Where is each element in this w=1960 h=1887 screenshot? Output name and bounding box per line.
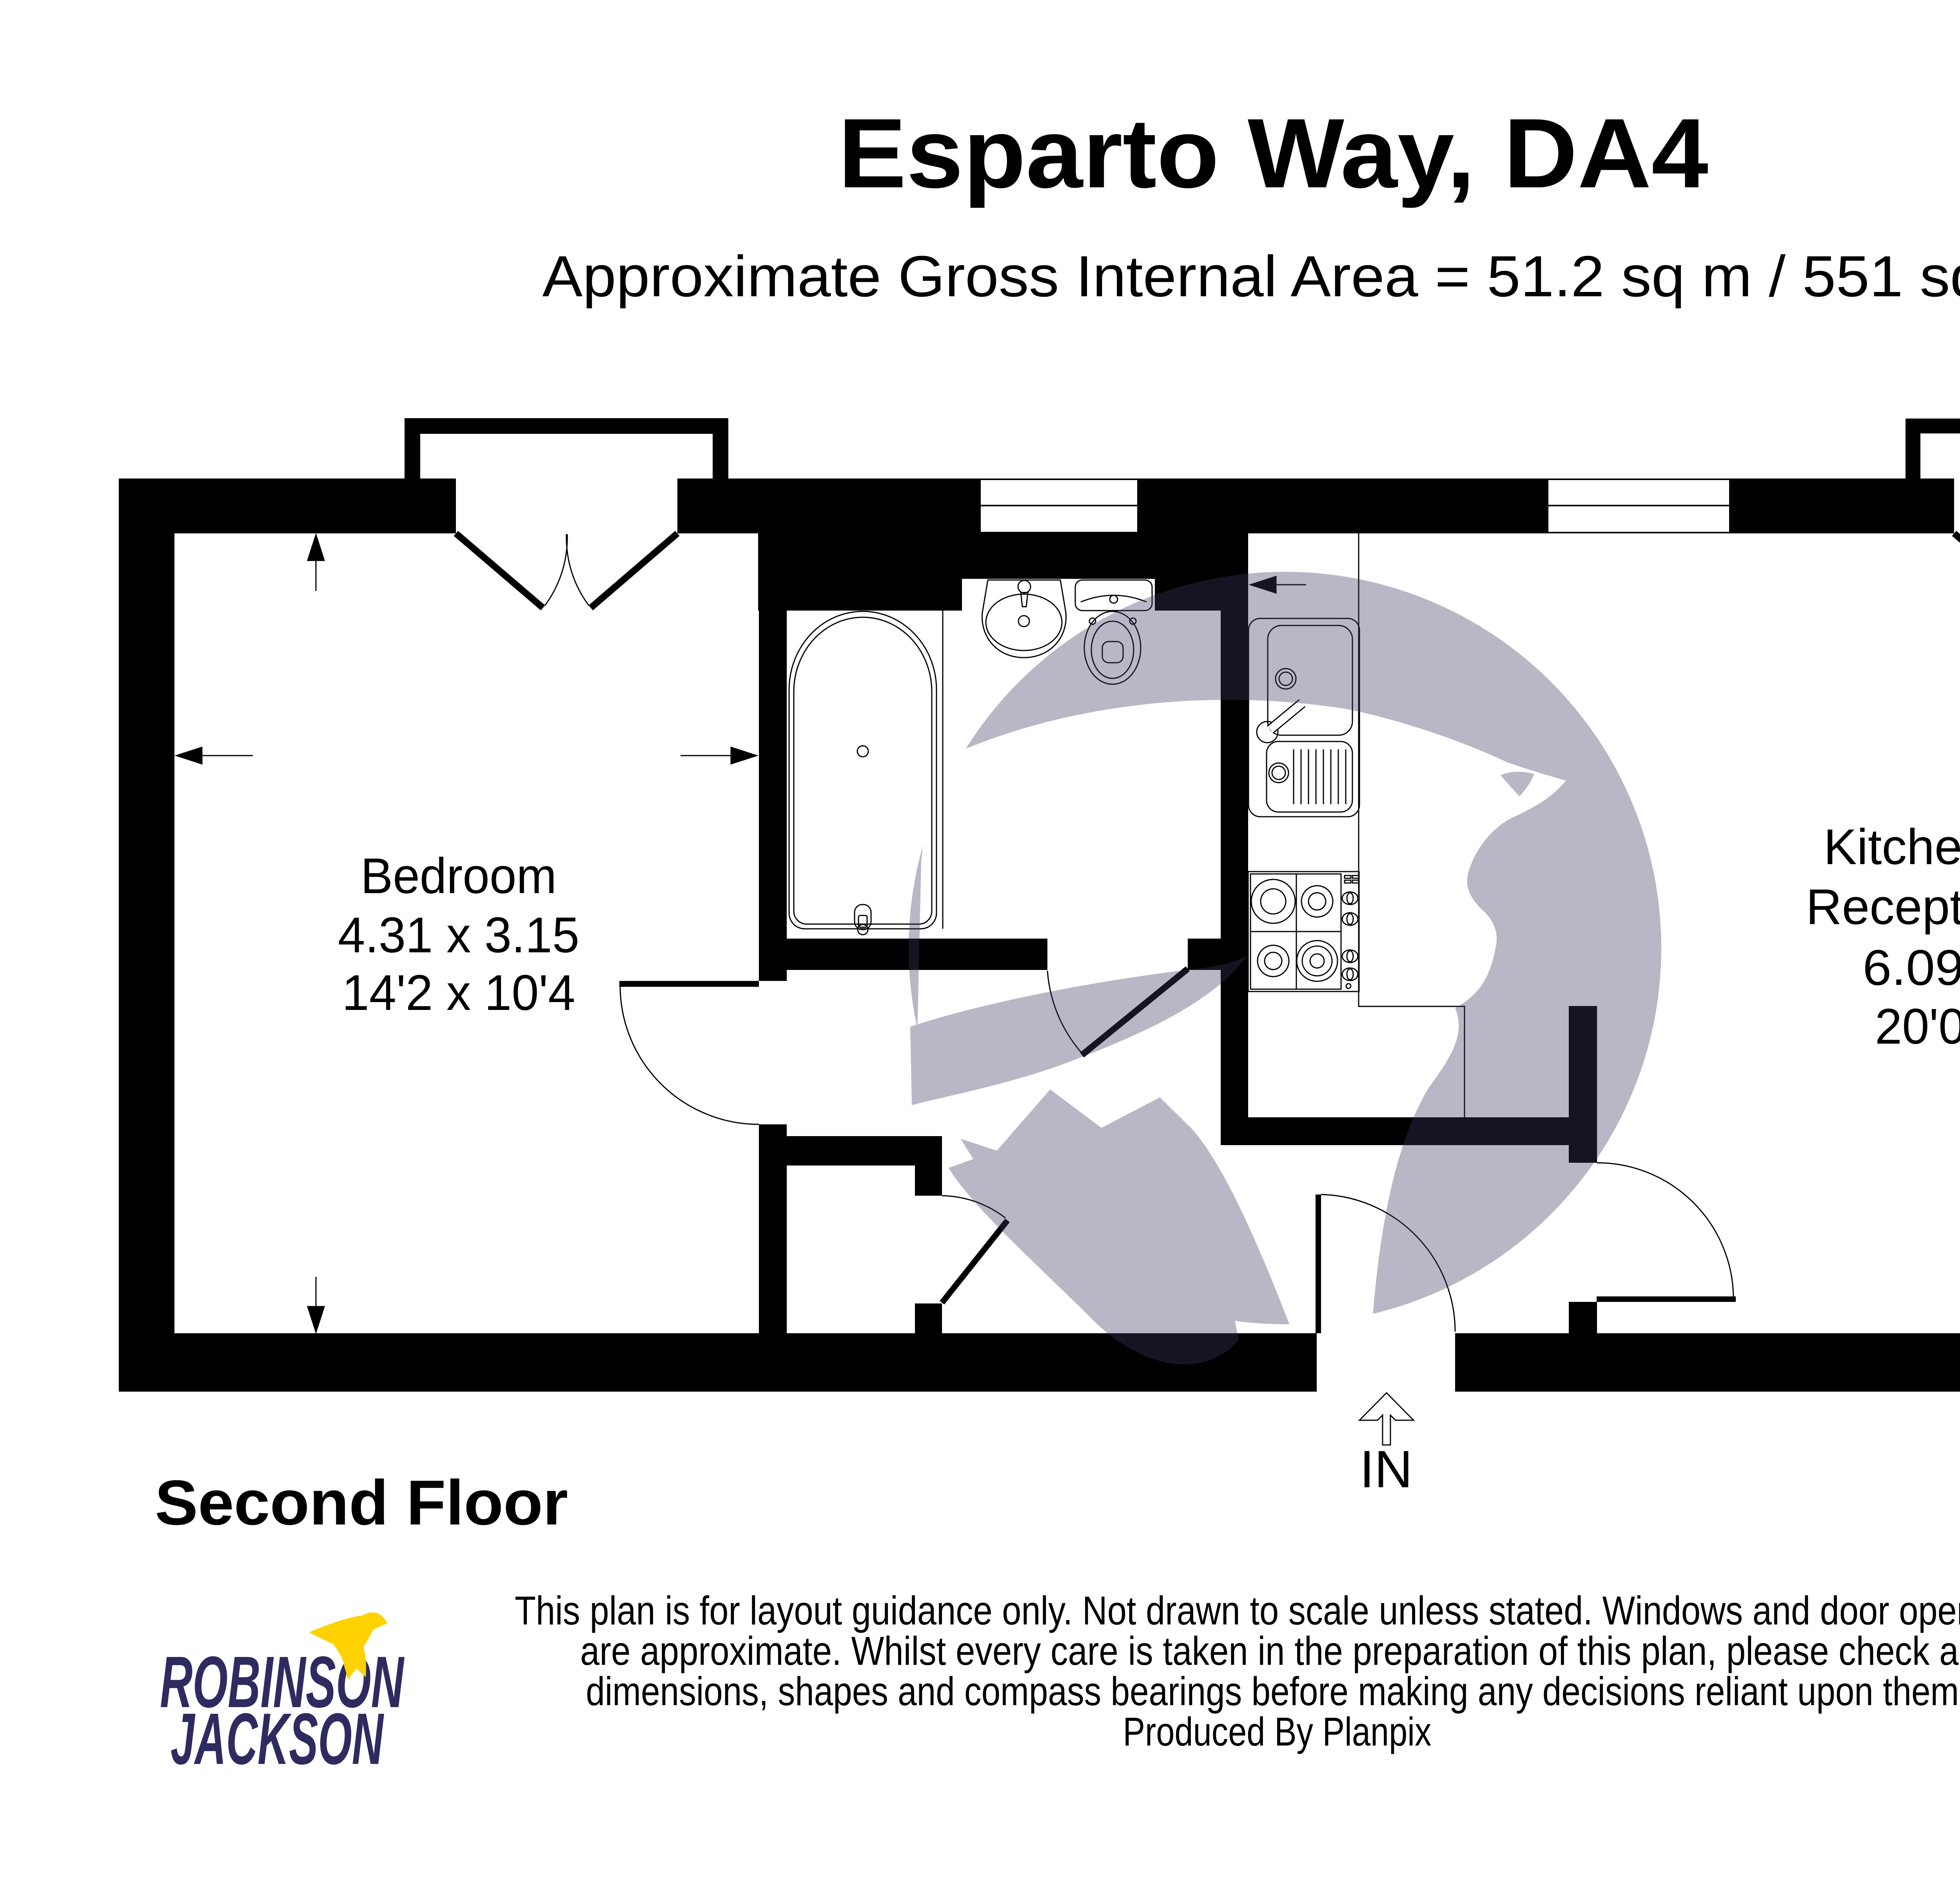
svg-text:Esparto Way, DA4: Esparto Way, DA4 (838, 98, 1708, 208)
svg-text:Kitchen/Dining/: Kitchen/Dining/ (1824, 819, 1960, 875)
svg-text:Produced By Planpix: Produced By Planpix (1123, 1709, 1432, 1754)
svg-text:4.31 x 3.15: 4.31 x 3.15 (338, 907, 579, 963)
svg-text:JACKSON: JACKSON (171, 1698, 384, 1780)
svg-text:This plan is for layout guidan: This plan is for layout guidance only. N… (515, 1588, 1960, 1633)
svg-text:6.09 x 4.29: 6.09 x 4.29 (1863, 940, 1960, 996)
svg-text:IN: IN (1360, 1440, 1413, 1499)
svg-text:dimensions, shapes and compass: dimensions, shapes and compass bearings … (586, 1669, 1960, 1714)
svg-text:Approximate Gross Internal Are: Approximate Gross Internal Area = 51.2 s… (543, 244, 1960, 309)
svg-text:Bedroom: Bedroom (361, 848, 557, 904)
svg-text:Second Floor: Second Floor (155, 1467, 568, 1538)
svg-text:Reception Room: Reception Room (1806, 879, 1960, 935)
svg-text:14'2 x 10'4: 14'2 x 10'4 (342, 965, 575, 1021)
svg-text:are approximate. Whilst every: are approximate. Whilst every care is ta… (580, 1628, 1960, 1673)
svg-text:20'0 x 14'1: 20'0 x 14'1 (1875, 999, 1960, 1055)
